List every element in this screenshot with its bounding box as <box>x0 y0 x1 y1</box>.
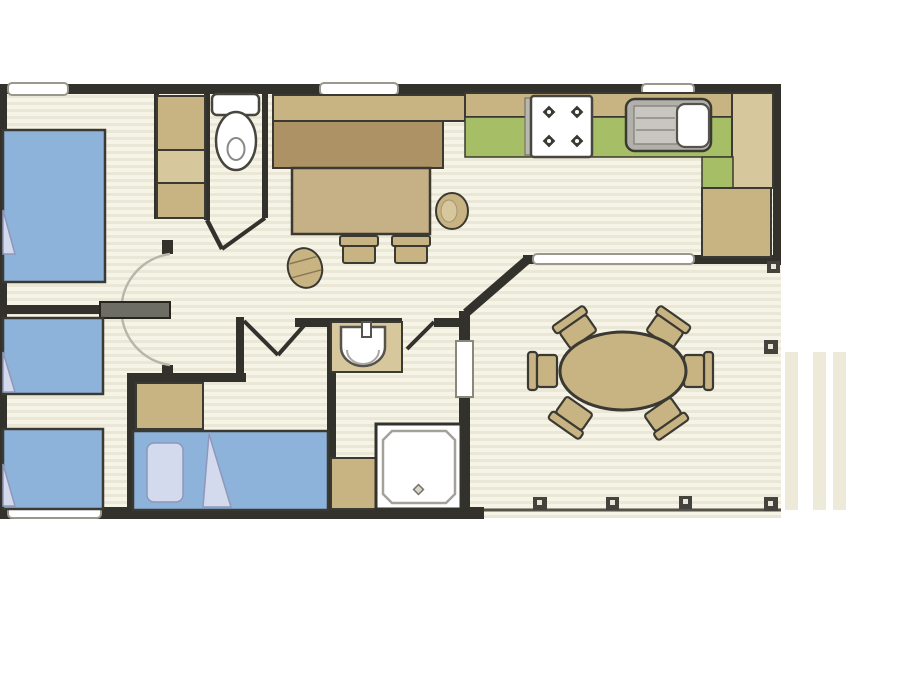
wardrobe-section-2 <box>157 150 205 183</box>
window-living-south <box>533 254 694 264</box>
entry-door <box>456 341 473 397</box>
dining-chair-3 <box>528 352 557 390</box>
deck-post <box>679 496 692 509</box>
burner-dot <box>575 139 579 143</box>
stool-back <box>392 236 430 246</box>
vanity-unit <box>331 458 377 509</box>
bed-twin-1 <box>3 318 103 394</box>
deck-post <box>764 497 778 511</box>
deck-post <box>606 497 619 510</box>
deck-step <box>813 352 826 510</box>
sink-basin <box>677 104 709 147</box>
dining-chair-4 <box>684 352 713 390</box>
stool-seat <box>343 246 375 263</box>
washbasin-tap <box>362 322 371 337</box>
floorplan-canvas <box>0 0 900 675</box>
dining-table <box>560 332 686 410</box>
tub-armchair <box>436 193 468 229</box>
wardrobe-section-3 <box>157 183 205 218</box>
dinette-stool-1 <box>340 236 378 263</box>
stool-back <box>340 236 378 246</box>
bench-back <box>273 95 465 121</box>
window-top-2 <box>320 83 398 95</box>
deck-post <box>767 261 780 273</box>
kitchen-corner-unit <box>702 188 771 257</box>
dinette-table <box>292 168 430 234</box>
burner-dot <box>547 110 551 114</box>
wall-bedroom12-divider <box>0 305 101 314</box>
burner-dot <box>547 139 551 143</box>
deck-step <box>833 352 846 510</box>
toilet-bowl-inner <box>228 138 245 160</box>
toilet <box>212 94 259 170</box>
wall-right <box>773 84 781 265</box>
deck-post <box>764 340 778 354</box>
hob <box>531 96 592 157</box>
wall-vestibule <box>236 317 244 382</box>
deck-side-steps <box>785 352 846 510</box>
window-top-1 <box>8 83 68 95</box>
swing-door-leaf <box>100 302 170 318</box>
deck-post <box>533 497 547 510</box>
kitchen-tall-unit <box>732 93 773 188</box>
wall-shower-jamb <box>434 318 461 327</box>
door-jamb-top <box>162 240 173 254</box>
armchair-seat <box>441 200 457 222</box>
wc-wall-right <box>262 93 268 218</box>
kitchen-sink <box>626 99 711 151</box>
dinette-stool-2 <box>392 236 430 263</box>
bed-twin-2 <box>3 429 103 509</box>
stool-seat <box>395 246 427 263</box>
deck-step <box>785 352 798 510</box>
wardrobe-section-1 <box>157 96 205 150</box>
wall-hall-south <box>127 373 246 382</box>
wardrobe-bedroom-double <box>136 383 203 429</box>
bench-seat <box>273 121 443 168</box>
pillow-double <box>147 443 183 502</box>
burner-dot <box>575 110 579 114</box>
floorplan-drawing <box>0 0 900 675</box>
kitchen-worktop-corner <box>702 157 733 188</box>
sink-drainer <box>634 106 677 144</box>
bed-main <box>3 130 105 282</box>
